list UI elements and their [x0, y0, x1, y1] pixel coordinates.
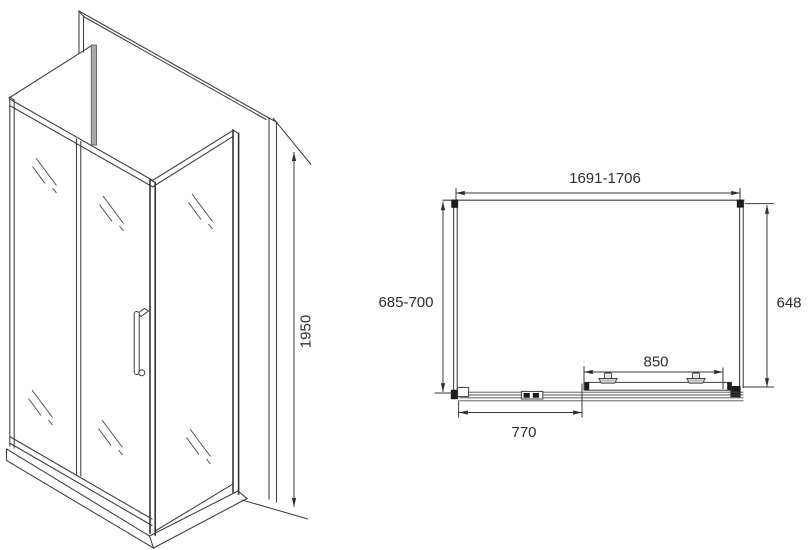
plan-sliding-door: [585, 373, 731, 390]
height-dimension: 1950: [242, 118, 315, 519]
glass-reflection-mark: [99, 420, 123, 455]
glass-reflection-mark: [33, 158, 57, 193]
technical-drawing-canvas: 1950: [0, 0, 809, 550]
plan-view: 1691-1706 685-700 648 850: [378, 170, 801, 441]
glass-reflection-marks: [29, 158, 213, 464]
glass-reflection-mark: [187, 429, 211, 464]
door-guide-block: [521, 391, 542, 399]
plan-right-panel: [730, 200, 743, 398]
wall-profile-anchor: [451, 390, 458, 399]
door-width-label: 850: [643, 354, 668, 371]
total-width-dimension: 1691-1706: [456, 170, 740, 200]
drawing-svg: 1950: [0, 0, 809, 550]
track-end-bracket: [458, 387, 469, 396]
door-roller: [599, 373, 617, 383]
glass-reflection-mark: [100, 196, 124, 231]
total-depth-label: 685-700: [378, 294, 433, 311]
height-dimension-label: 1950: [298, 315, 315, 348]
door-handle: [134, 309, 148, 376]
fixed-panel-width-label: 770: [511, 424, 536, 441]
left-panel-top-edge: [9, 46, 91, 98]
shower-tray: [7, 449, 248, 548]
front-frame: [10, 97, 239, 535]
door-roller: [687, 373, 705, 383]
side-width-dimension: 648: [744, 204, 802, 387]
side-width-label: 648: [777, 295, 802, 312]
wall-profile-anchor: [730, 386, 740, 397]
plan-left-panel: [451, 200, 458, 400]
glass-reflection-mark: [29, 390, 53, 425]
isometric-view: 1950: [7, 11, 315, 548]
total-depth-dimension: 685-700: [378, 202, 452, 394]
wall-profile-anchor: [737, 200, 744, 208]
total-width-label: 1691-1706: [569, 170, 641, 187]
wall-profile-strip: [91, 45, 96, 145]
glass-reflection-mark: [189, 194, 213, 229]
wall-profile-anchor: [451, 200, 458, 208]
